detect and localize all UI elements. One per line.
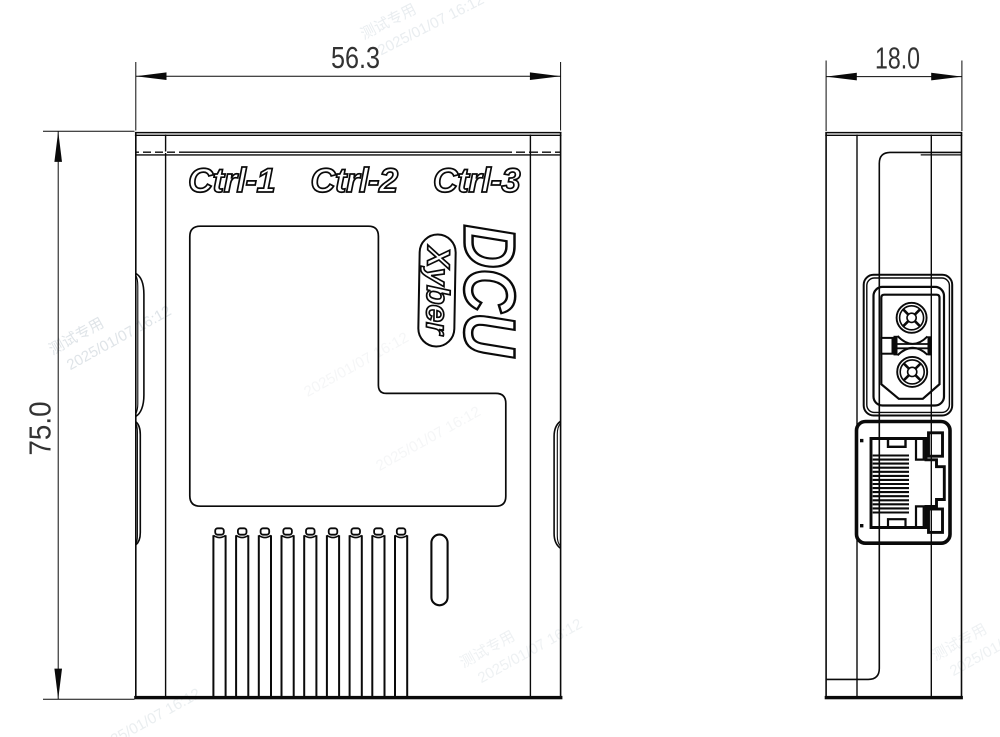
svg-text:18.0: 18.0 <box>875 41 920 76</box>
svg-text:75.0: 75.0 <box>23 402 58 456</box>
svg-text:Ctrl-2: Ctrl-2 <box>311 162 398 200</box>
svg-text:2025/01/07 16:12: 2025/01/07 16:12 <box>373 403 483 474</box>
svg-text:56.3: 56.3 <box>331 40 380 75</box>
svg-text:2025/01/07 16:12: 2025/01/07 16:12 <box>301 329 411 400</box>
svg-text:Xyber: Xyber <box>419 244 457 336</box>
svg-text:2025/01/07 16:12: 2025/01/07 16:12 <box>93 685 203 737</box>
svg-text:Ctrl-1: Ctrl-1 <box>188 162 275 200</box>
svg-text:Ctrl-3: Ctrl-3 <box>433 162 520 200</box>
svg-text:DCU: DCU <box>449 225 529 359</box>
